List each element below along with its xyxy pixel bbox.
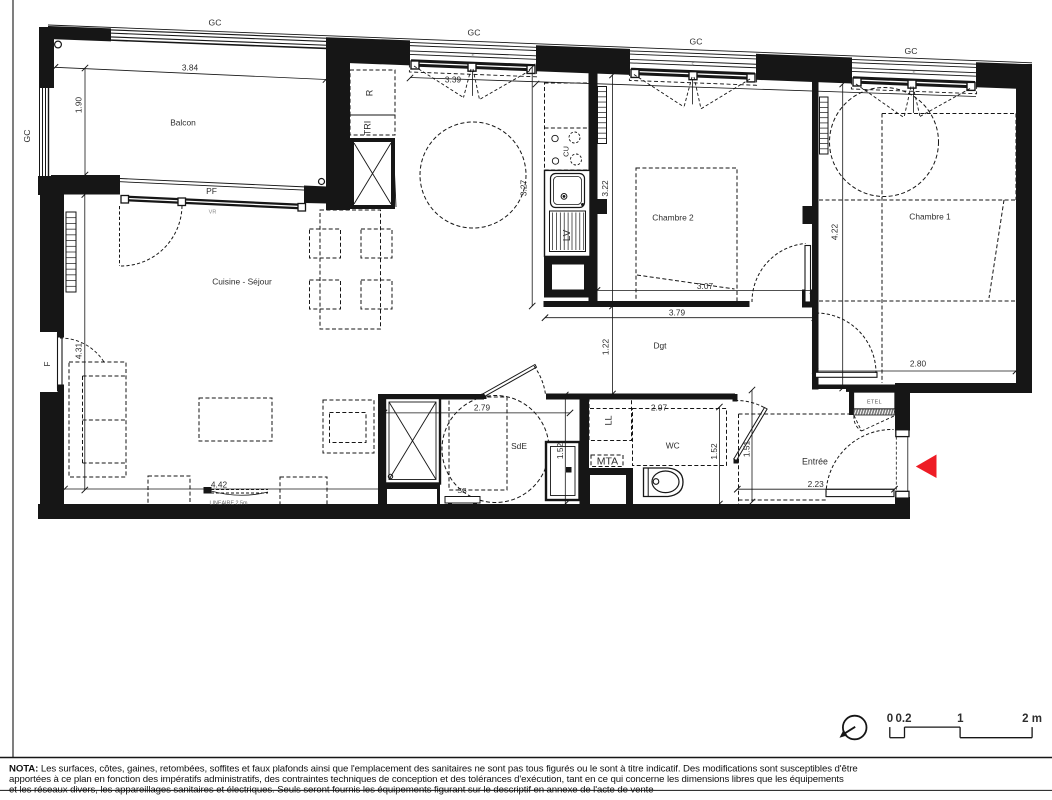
svg-text:2.80: 2.80 (910, 359, 927, 369)
svg-text:WC: WC (666, 441, 680, 451)
svg-text:LINEAIRE 2.5m: LINEAIRE 2.5m (209, 501, 248, 507)
svg-text:2.79: 2.79 (474, 402, 491, 412)
svg-text:4.42: 4.42 (211, 480, 228, 490)
svg-text:2 m: 2 m (1022, 713, 1042, 725)
svg-text:Balcon: Balcon (170, 118, 196, 128)
svg-text:F: F (43, 361, 52, 366)
svg-text:CU: CU (562, 146, 571, 157)
svg-text:Dgt: Dgt (653, 341, 667, 351)
svg-text:LV: LV (562, 229, 573, 241)
svg-text:3.07: 3.07 (697, 281, 714, 291)
svg-text:GC: GC (690, 37, 703, 47)
svg-text:et les réseaux divers, les app: et les réseaux divers, les appareillages… (9, 784, 653, 795)
svg-text:4.31: 4.31 (74, 343, 84, 360)
svg-text:0.2: 0.2 (896, 713, 912, 725)
svg-text:SS: SS (457, 488, 467, 495)
svg-text:MTA: MTA (597, 456, 618, 468)
svg-text:1.52: 1.52 (709, 443, 719, 460)
svg-text:R: R (365, 89, 375, 96)
svg-text:F: F (692, 61, 695, 67)
svg-text:3.27: 3.27 (519, 180, 529, 197)
svg-text:4.22: 4.22 (830, 224, 840, 241)
svg-text:0: 0 (887, 713, 893, 725)
svg-text:1.51: 1.51 (742, 441, 752, 458)
svg-text:1.22: 1.22 (601, 339, 611, 356)
svg-text:Chambre 1: Chambre 1 (909, 212, 951, 222)
svg-text:PF: PF (206, 186, 217, 196)
svg-text:GC: GC (905, 46, 918, 56)
svg-text:Chambre 2: Chambre 2 (652, 213, 694, 223)
svg-text:1.52: 1.52 (555, 443, 565, 460)
svg-text:Cuisine - Séjour: Cuisine - Séjour (212, 277, 272, 287)
svg-text:SdE: SdE (511, 441, 527, 451)
svg-text:VR: VR (209, 210, 217, 216)
svg-text:TRI: TRI (363, 121, 373, 136)
svg-text:Entrée: Entrée (802, 456, 828, 466)
svg-text:1: 1 (957, 713, 964, 725)
svg-text:3.22: 3.22 (600, 180, 610, 197)
svg-text:F: F (472, 53, 475, 59)
svg-text:ETEL: ETEL (867, 399, 882, 405)
svg-text:GC: GC (468, 27, 481, 37)
svg-text:3.79: 3.79 (669, 307, 686, 317)
svg-text:3.39: 3.39 (445, 74, 462, 84)
svg-text:2.23: 2.23 (808, 479, 825, 489)
svg-text:3.84: 3.84 (182, 63, 199, 73)
svg-text:GC: GC (22, 130, 32, 143)
svg-text:NOTA: Les surfaces, côtes, ga: NOTA: Les surfaces, côtes, gaines, retom… (9, 764, 858, 775)
svg-text:F: F (913, 70, 916, 76)
svg-text:1.90: 1.90 (74, 97, 84, 114)
svg-text:2.97: 2.97 (651, 403, 668, 413)
svg-text:LL: LL (604, 415, 614, 425)
svg-text:GC: GC (209, 17, 222, 27)
